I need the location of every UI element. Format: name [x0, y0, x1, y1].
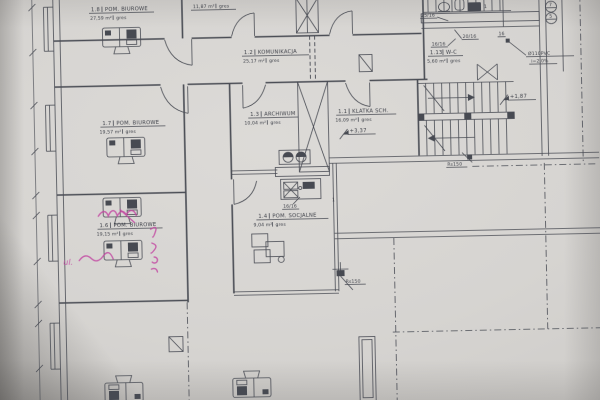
columns	[169, 332, 376, 400]
room-label-top-middle: 11,87 m² gres	[191, 3, 236, 10]
room-number: 1.1	[338, 109, 347, 115]
cabinet-icon	[252, 233, 285, 263]
level-marker-floor: +3,37	[340, 128, 376, 139]
room-area: 10,04 m²	[244, 120, 266, 126]
room-finish: gres	[275, 222, 286, 228]
toilet-icon	[455, 0, 464, 10]
desk-icon	[107, 137, 146, 164]
downpipe-note: Rs150	[332, 262, 366, 291]
room-area: 25,17 m²	[243, 58, 265, 64]
door-x-symbol	[477, 64, 497, 80]
radiator-note: 20/16	[454, 29, 478, 40]
room-number: 1.2	[244, 50, 253, 56]
room-name: ARCHIWUM	[264, 111, 295, 118]
callout-number: 5	[549, 14, 552, 20]
room-label-1-13: 1.13 W-C 5,60 m² gres	[427, 49, 463, 65]
room-label-1-7: 1.7 POM. BIUROWE 19,57 m² gres	[99, 119, 165, 135]
handwritten-word: ul.	[63, 258, 73, 267]
room-number: 1.8	[91, 7, 100, 13]
top-partitions	[182, 0, 505, 84]
callout-bubbles: 7 5	[545, 1, 556, 24]
room-label-1-3: 1.3 ARCHIWUM 10,04 m² gres	[244, 111, 298, 127]
handwritten-annotations: ul.	[62, 209, 158, 274]
room-name: W-C	[446, 50, 457, 56]
level-marker-stair: +1,87	[500, 94, 536, 105]
room-area: 27,59 m²	[90, 15, 112, 21]
room-finish: gres	[125, 129, 136, 135]
main-flights	[418, 82, 515, 156]
dimension-chain	[28, 0, 44, 400]
room-finish: gres	[269, 58, 280, 64]
cistern-icon	[468, 2, 481, 11]
room-label-1-4: 1.4 POM. SOCJALNE 9,04 m² gres	[253, 212, 328, 229]
floor-plan-photo: 1.8 POM. BIUROWE 27,59 m² gres 11,87 m² …	[0, 0, 600, 400]
room-number: 1.6	[99, 223, 108, 229]
room-area: 9,04 m²	[253, 222, 272, 228]
room-label-1-1: 1.1 KLATKA SCH. 16,09 m² gres	[335, 107, 396, 123]
room-finish: gres	[116, 15, 127, 21]
room-number: 1.4	[258, 214, 268, 220]
room-finish: gres	[361, 117, 372, 123]
room-area: 5,60 m²	[427, 58, 446, 64]
radiator-note: 16	[498, 31, 506, 37]
room-finish: gres	[450, 58, 461, 64]
room-finish: gres	[219, 3, 230, 9]
keynote: 1	[332, 197, 335, 203]
keynote: 1	[484, 4, 487, 10]
floor-plan-drawing: 1.8 POM. BIUROWE 27,59 m² gres 11,87 m² …	[0, 0, 600, 400]
callout-number: 7	[549, 2, 552, 8]
upper-flight	[423, 0, 511, 12]
room-number: 1.13	[430, 50, 443, 56]
room-label-1-8: 1.8 POM. BIUROWE 27,59 m² gres	[89, 6, 154, 22]
level-value: +3,37	[350, 128, 367, 134]
room-number: 1.7	[102, 121, 111, 127]
room-finish: gres	[270, 120, 281, 126]
room-finish: gres	[123, 231, 134, 237]
room-area: 19,15 m²	[97, 231, 119, 237]
sink-icon	[281, 179, 321, 200]
desk-icon	[233, 371, 272, 398]
desk-icon	[105, 375, 144, 400]
room-label-1-6: 1.6 POM. BIUROWE 19,15 m² gres	[96, 221, 162, 237]
stair-direction-arrow-icon	[428, 135, 435, 142]
left-exterior-wall	[28, 0, 68, 400]
room-number: 1.3	[250, 112, 259, 118]
corridor-walls	[54, 33, 428, 87]
room-area: 19,57 m²	[99, 129, 121, 135]
room-label-1-2: 1.2 KOMUNIKACJA 25,17 m² gres	[242, 48, 309, 64]
radiator-note: 16/16	[431, 39, 456, 48]
stairs	[416, 0, 542, 155]
hatched-wall	[421, 11, 539, 22]
room-area: 16,09 m²	[335, 117, 357, 123]
window-icon	[43, 7, 60, 369]
level-value: +1,87	[510, 94, 527, 100]
room-area: 11,87 m²	[193, 4, 215, 10]
